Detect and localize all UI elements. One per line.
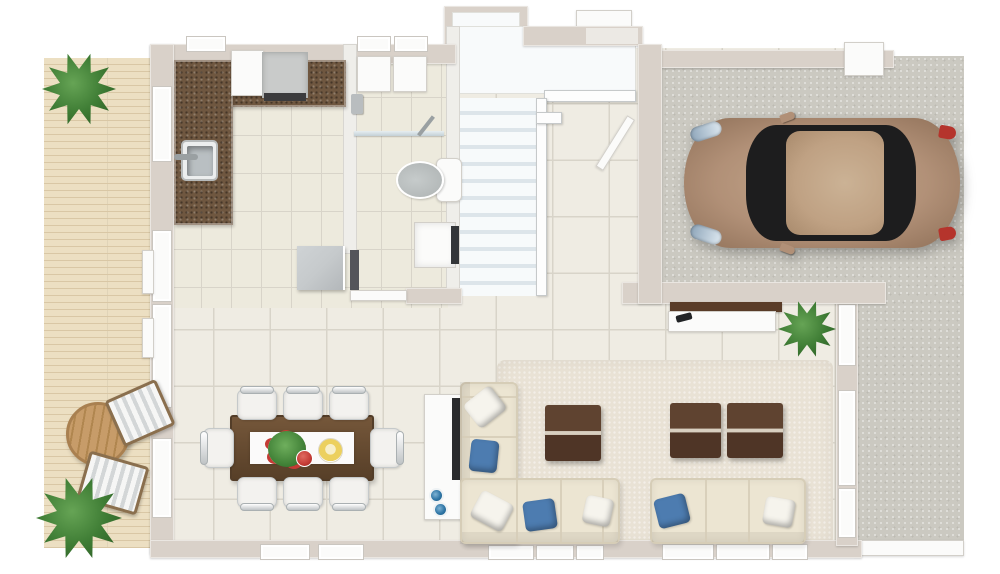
- window: [838, 304, 856, 366]
- window: [662, 544, 714, 560]
- toilet: [396, 161, 444, 199]
- dining-chair: [237, 477, 277, 508]
- stair-flight: [460, 98, 536, 296]
- bathroom-window-top: [394, 36, 428, 52]
- car-taillight: [938, 226, 957, 242]
- kitchen-faucet: [174, 154, 198, 160]
- bathroom-door-leaf: [350, 290, 407, 301]
- car: [684, 118, 960, 248]
- kitchen-window-top: [186, 36, 226, 52]
- garage-door-pillar: [844, 42, 884, 76]
- fruit-bowl: [296, 450, 313, 467]
- garage-left-wall: [638, 44, 662, 304]
- window: [260, 544, 310, 560]
- built-in-appliance: [231, 50, 264, 96]
- window: [488, 545, 534, 560]
- sofa-seam: [516, 480, 518, 542]
- stair-railing-horizontal: [544, 90, 636, 102]
- dining-chair: [283, 389, 323, 420]
- window: [536, 545, 574, 560]
- left-wall-sliding-door: [152, 230, 172, 302]
- sofa-back-cushion: [652, 532, 804, 542]
- stair-railing-corner: [536, 112, 562, 124]
- coffee-table: [670, 403, 721, 458]
- dining-chair: [283, 477, 323, 508]
- window: [772, 544, 808, 560]
- throw-pillow-white: [762, 496, 796, 529]
- entry-doorway-gap: [586, 28, 638, 44]
- wash-basin: [414, 222, 456, 268]
- shower-glass-screen: [354, 131, 444, 136]
- dining-chair: [237, 389, 277, 420]
- throw-pillow-blue: [468, 439, 499, 474]
- driveway-floor: [854, 298, 964, 544]
- sofa-seam: [560, 480, 562, 542]
- left-wall-window: [152, 438, 172, 518]
- sofa-seam: [705, 480, 707, 542]
- open-door-panel: [297, 246, 345, 290]
- sofa-back-cushion: [462, 532, 618, 542]
- range-vent-strip: [264, 93, 306, 101]
- window-sill: [142, 250, 154, 294]
- dining-chair: [329, 389, 369, 420]
- window-sill: [142, 318, 154, 358]
- window: [716, 544, 770, 560]
- window: [318, 544, 364, 560]
- blue-bowl: [429, 488, 444, 503]
- dining-chair: [370, 428, 401, 468]
- fruit-plate: [318, 438, 343, 463]
- bathroom-wall-cabinet: [393, 56, 427, 92]
- bathroom-window-top: [357, 36, 391, 52]
- range-cooktop: [262, 52, 308, 98]
- driveway-curb: [854, 540, 964, 556]
- kitchen-sink-basin: [187, 146, 213, 176]
- throw-pillow-white: [581, 494, 614, 527]
- window: [838, 390, 856, 486]
- blue-bowl: [433, 502, 448, 517]
- car-taillight: [938, 125, 957, 141]
- throw-pillow-blue: [522, 498, 558, 532]
- shower-head: [351, 94, 363, 114]
- coffee-table: [545, 405, 601, 461]
- left-wall-window: [152, 86, 172, 162]
- basin-dark-strip: [451, 226, 459, 264]
- sofa-seam: [462, 436, 516, 438]
- bathroom-bottom-wall: [406, 288, 462, 304]
- stair-railing-vertical: [536, 98, 547, 296]
- floor-plan-canvas: [0, 0, 1000, 574]
- coffee-table: [727, 403, 783, 458]
- bathroom-wall-cabinet: [357, 56, 391, 92]
- window: [576, 545, 604, 560]
- window: [838, 488, 856, 538]
- dining-chair: [203, 428, 234, 468]
- sofa-seam: [748, 480, 750, 542]
- car-roof: [786, 131, 884, 235]
- dining-chair: [329, 477, 369, 508]
